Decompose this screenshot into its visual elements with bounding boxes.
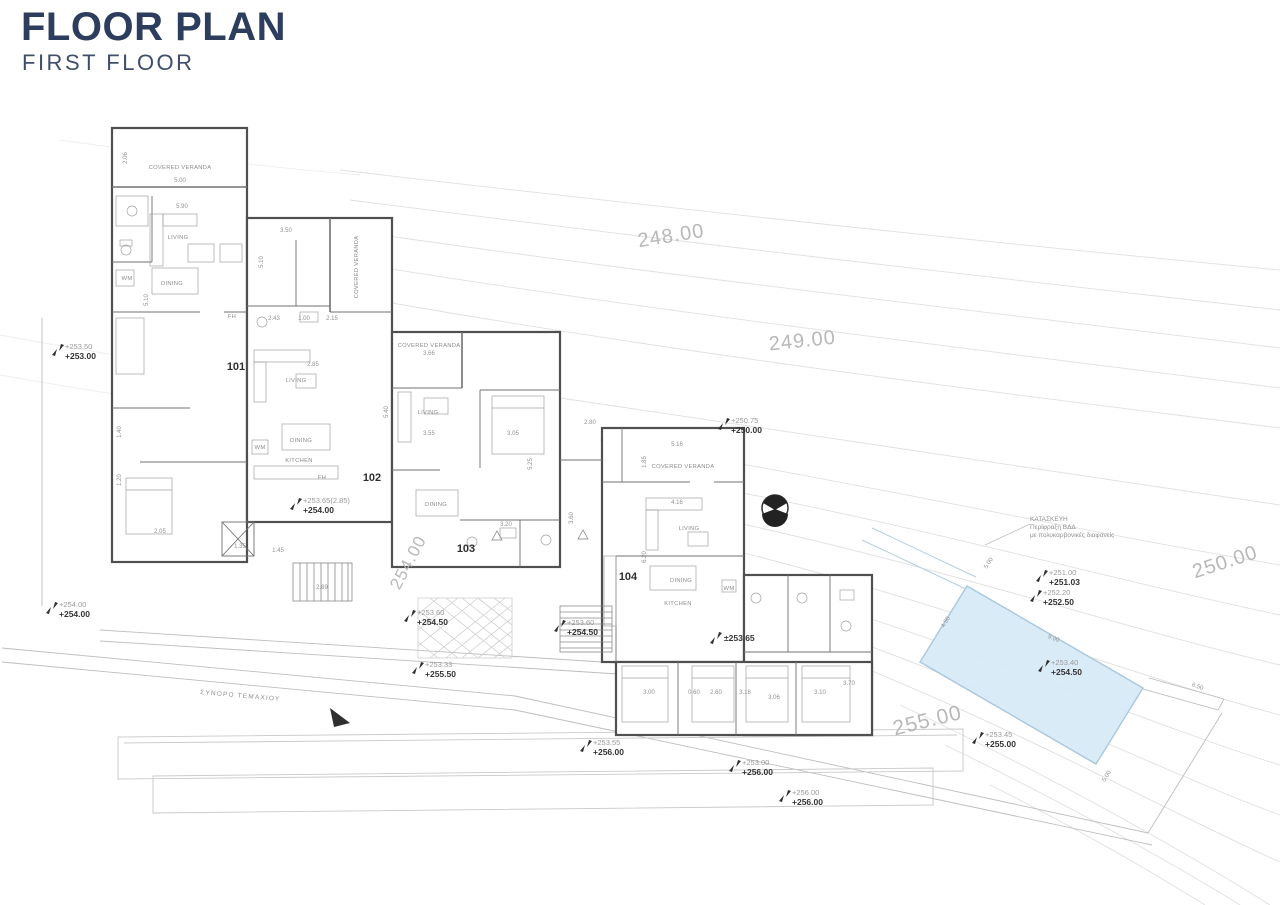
dimension-label: 5.40: [384, 406, 390, 418]
elevation-marker: +253.60+254.50: [404, 608, 448, 627]
dimension-label: 1.45: [272, 548, 284, 554]
dimension-label: 2.05: [154, 529, 166, 535]
elevation-marker: +253.45+255.00: [972, 730, 1016, 749]
elevation-proposed-level: +256.00: [792, 797, 823, 807]
dimension-label: 2.43: [268, 316, 280, 322]
unit-number-label: 103: [457, 543, 475, 555]
dimension-label: 2.06: [123, 152, 129, 164]
dimension-label: 3.10: [814, 690, 826, 696]
room-label: DINING: [290, 438, 312, 444]
dimension-label: 1.85: [642, 456, 648, 468]
plan-note-line: Περίφραξη ΒΔΔ: [1030, 523, 1076, 531]
elevation-marker: +252.20+252.50: [1030, 588, 1074, 607]
elevation-existing-level: +253.55: [593, 738, 620, 747]
benchmark-icon: [1036, 570, 1048, 582]
room-label: COVERED VERANDA: [652, 464, 715, 470]
dimension-label: 4.16: [671, 500, 683, 506]
elevation-marker: +251.00+251.03: [1036, 568, 1080, 587]
dimension-label: 3.70: [843, 681, 855, 687]
floor-plan-drawing: 248.00249.00250.00254.00255.00 2.065.005…: [0, 0, 1280, 905]
room-label: WM: [724, 586, 735, 592]
room-label: DINING: [161, 281, 183, 287]
elevation-existing-level: +253.60: [417, 608, 444, 617]
elevation-proposed-level: +251.03: [1049, 577, 1080, 587]
elevation-marker: +254.00+254.00: [46, 600, 90, 619]
dimension-label: 5.10: [144, 294, 150, 306]
page-title: FLOOR PLAN: [21, 6, 286, 48]
benchmark-icon: [404, 610, 416, 622]
elevation-existing-level: +252.20: [1043, 588, 1070, 597]
room-label: DINING: [670, 578, 692, 584]
benchmark-icon: [46, 602, 58, 614]
room-label: LIVING: [168, 235, 189, 241]
elevation-existing-level: +253.60: [567, 618, 594, 627]
plan-note-line: ΚΑΤΑΣΚΕΥΗ: [1030, 516, 1068, 523]
north-arrow-icon: [330, 708, 350, 727]
room-label: DINING: [425, 502, 447, 508]
elevation-marker: +253.60+254.50: [554, 618, 598, 637]
contour-elevation-label: 249.00: [768, 327, 837, 356]
elevation-existing-level: +256.00: [792, 788, 819, 797]
benchmark-icon: [779, 790, 791, 802]
elevation-proposed-level: +250.00: [731, 425, 762, 435]
room-label: COVERED VERANDA: [149, 165, 212, 171]
elevation-marker: +253.50+253.00: [52, 342, 96, 361]
contour-elevation-label: 255.00: [891, 701, 965, 740]
elevation-existing-level: +250.75: [731, 416, 758, 425]
elevation-proposed-level: +254.00: [303, 505, 334, 515]
dimension-label: 5.16: [671, 442, 683, 448]
dimension-label: 3.60: [569, 512, 575, 524]
dimension-label: 5.90: [176, 204, 188, 210]
dimension-label: 2.80: [584, 420, 596, 426]
dimension-label: 3.06: [768, 695, 780, 701]
dimension-label: 1.20: [117, 474, 123, 486]
note-leader-line: [985, 524, 1030, 545]
dimension-label: 6.20: [642, 551, 648, 563]
elevation-existing-level: +253.50: [65, 342, 92, 351]
room-label: WM: [255, 445, 266, 451]
dimension-label: 3.50: [280, 228, 292, 234]
elevation-existing-level: +253.00: [742, 758, 769, 767]
dimension-label: 1.35: [234, 544, 246, 550]
elevation-proposed-level: ±253.65: [724, 633, 755, 643]
unit-number-label: 104: [619, 571, 638, 583]
elevation-existing-level: +253.40: [1051, 658, 1078, 667]
dimension-label: 2.60: [710, 690, 722, 696]
elevation-existing-level: +253.33: [425, 660, 452, 669]
elevation-existing-level: +253.45: [985, 730, 1012, 739]
benchmark-icon: [580, 740, 592, 752]
elevation-proposed-level: +254.50: [1051, 667, 1082, 677]
dimension-label: 3.20: [500, 522, 512, 528]
dimension-label: 0.60: [688, 690, 700, 696]
elevation-existing-level: +251.00: [1049, 568, 1076, 577]
dimension-label: 5.00: [174, 178, 186, 184]
pool-walkway: [862, 528, 976, 589]
dimension-label: 3.00: [643, 690, 655, 696]
page-header: FLOOR PLAN FIRST FLOOR: [21, 6, 286, 76]
elevation-marker: +253.00+256.00: [729, 758, 773, 777]
elevation-marker: +253.33+255.50: [412, 660, 456, 679]
elevation-proposed-level: +255.00: [985, 739, 1016, 749]
dimension-label: 1.40: [117, 426, 123, 438]
elevation-proposed-level: +254.50: [417, 617, 448, 627]
room-label: LIVING: [679, 526, 700, 532]
tree-symbol: [762, 495, 788, 527]
room-label: LIVING: [418, 410, 439, 416]
elevation-proposed-level: +256.00: [593, 747, 624, 757]
dimension-label: 3.66: [423, 351, 435, 357]
elevation-existing-level: +254.00: [59, 600, 86, 609]
elevation-proposed-level: +254.50: [567, 627, 598, 637]
room-label: COVERED VERANDA: [354, 236, 360, 299]
elevation-proposed-level: +254.00: [59, 609, 90, 619]
dimension-label: 3.18: [739, 690, 751, 696]
dimension-label: 1.00: [298, 316, 310, 322]
plan-note-line: με πολυκαρβονικές διαφανείς: [1030, 531, 1114, 539]
elevation-proposed-level: +252.50: [1043, 597, 1074, 607]
room-label: LIVING: [286, 378, 307, 384]
unit-number-label: 102: [363, 472, 381, 484]
room-label: FH: [318, 475, 326, 481]
page-subtitle: FIRST FLOOR: [22, 50, 286, 76]
benchmark-icon: [1030, 590, 1042, 602]
room-label: FH: [228, 314, 236, 320]
unit-number-label: 101: [227, 361, 245, 373]
elevation-marker: +256.00+256.00: [779, 788, 823, 807]
elevation-proposed-level: +256.00: [742, 767, 773, 777]
room-label: KITCHEN: [285, 458, 313, 464]
dimension-label: 2.15: [326, 316, 338, 322]
elevation-proposed-level: +255.50: [425, 669, 456, 679]
room-label: COVERED VERANDA: [398, 343, 461, 349]
elevation-proposed-level: +253.00: [65, 351, 96, 361]
dimension-label: 3.55: [423, 431, 435, 437]
pergola-grid: [418, 598, 512, 658]
dimension-label: 5.10: [259, 256, 265, 268]
elevation-existing-level: +253.65(2.85): [303, 496, 350, 505]
benchmark-icon: [412, 662, 424, 674]
plan-note-line: ΣΥΝΟΡΟ ΤΕΜΑΧΙΟΥ: [200, 689, 281, 703]
contour-elevation-label: 248.00: [636, 220, 706, 252]
room-label: KITCHEN: [664, 601, 692, 607]
dimension-label: 5.25: [528, 458, 534, 470]
dimension-label: 2.89: [316, 585, 328, 591]
contour-elevation-label: 250.00: [1190, 541, 1261, 583]
elevation-marker: +253.55+256.00: [580, 738, 624, 757]
dimension-label: 3.05: [507, 431, 519, 437]
dimension-label: 5.00: [984, 556, 996, 570]
stairs: [293, 563, 612, 658]
room-label: WM: [122, 276, 133, 282]
dimension-label: 2.85: [307, 362, 319, 368]
